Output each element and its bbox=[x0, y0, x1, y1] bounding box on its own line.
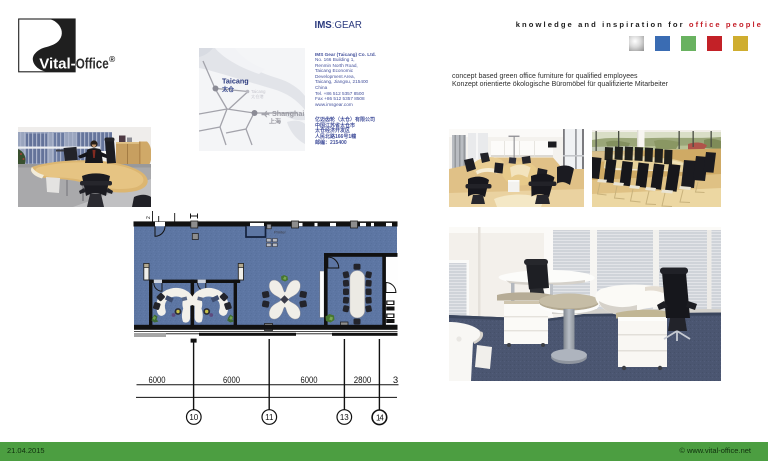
svg-text:太仓: 太仓 bbox=[221, 86, 235, 94]
svg-text:6000: 6000 bbox=[301, 375, 318, 386]
svg-text:3: 3 bbox=[393, 375, 398, 386]
svg-text:Printer: Printer bbox=[274, 230, 286, 235]
svg-text:2: 2 bbox=[146, 216, 152, 219]
svg-text:®: ® bbox=[109, 54, 116, 64]
svg-text:Vital-Office: Vital-Office bbox=[39, 56, 109, 73]
svg-text:Taicang: Taicang bbox=[222, 77, 249, 86]
svg-text:6000: 6000 bbox=[149, 375, 166, 386]
svg-text:13: 13 bbox=[340, 413, 349, 422]
svg-text:2800: 2800 bbox=[354, 375, 372, 386]
svg-text:太仓港: 太仓港 bbox=[251, 93, 264, 100]
svg-text:11: 11 bbox=[265, 413, 274, 422]
svg-text:6000: 6000 bbox=[223, 375, 240, 386]
svg-text:Shanghai: Shanghai bbox=[272, 109, 304, 118]
svg-text:上海: 上海 bbox=[269, 118, 281, 126]
svg-text:10: 10 bbox=[189, 413, 198, 422]
